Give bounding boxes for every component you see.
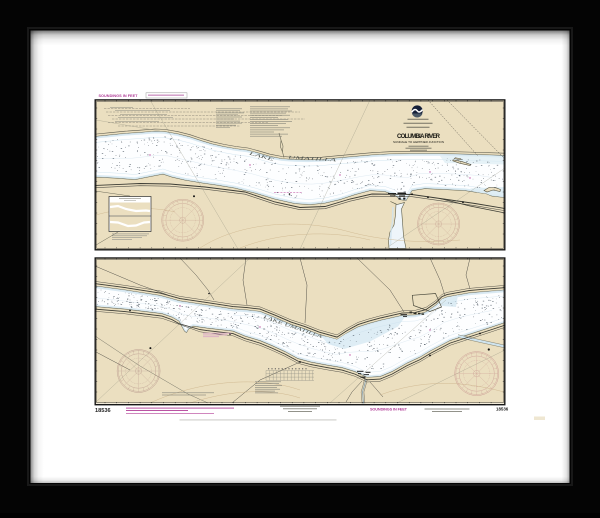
svg-text:SOUNDINGS IN FEET: SOUNDINGS IN FEET [370, 408, 408, 412]
svg-text:SOUNDINGS IN FEET: SOUNDINGS IN FEET [99, 94, 139, 98]
svg-text:18536: 18536 [496, 407, 509, 412]
svg-text:18536: 18536 [95, 408, 111, 414]
svg-text:SUNDALE TO HEPPNER JUNCTION: SUNDALE TO HEPPNER JUNCTION [393, 140, 444, 144]
svg-text:COLUMBIA RIVER: COLUMBIA RIVER [397, 134, 441, 140]
